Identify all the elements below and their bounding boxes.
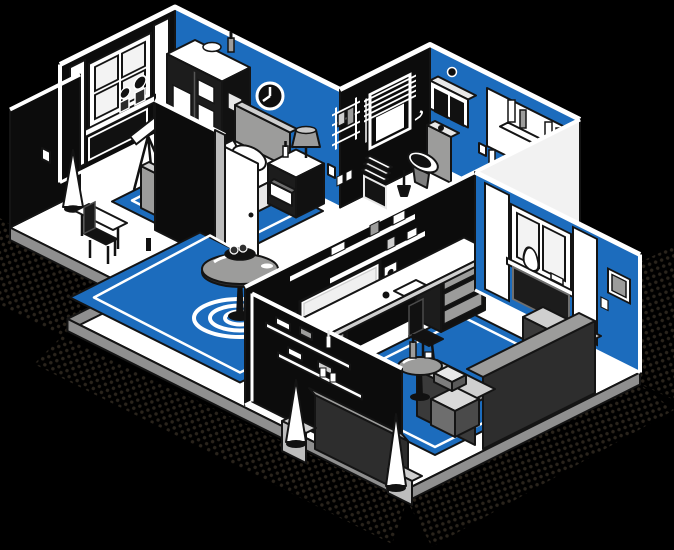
door-knob — [249, 213, 254, 218]
light-switch — [320, 368, 326, 377]
light-switch — [479, 143, 486, 156]
bottle — [520, 110, 526, 128]
bottle — [508, 100, 515, 122]
jar — [448, 68, 457, 77]
apartment-svg — [0, 0, 674, 550]
light-switch — [328, 164, 335, 178]
coaster — [261, 264, 273, 269]
tray — [203, 43, 221, 52]
wall-clock — [257, 83, 283, 109]
bed-leg — [146, 238, 151, 251]
table-item — [425, 352, 432, 358]
flush-button — [438, 125, 444, 131]
light-switch — [330, 373, 336, 382]
curtain-left — [485, 183, 509, 301]
apartment-illustration — [0, 0, 674, 550]
mug — [383, 292, 390, 299]
